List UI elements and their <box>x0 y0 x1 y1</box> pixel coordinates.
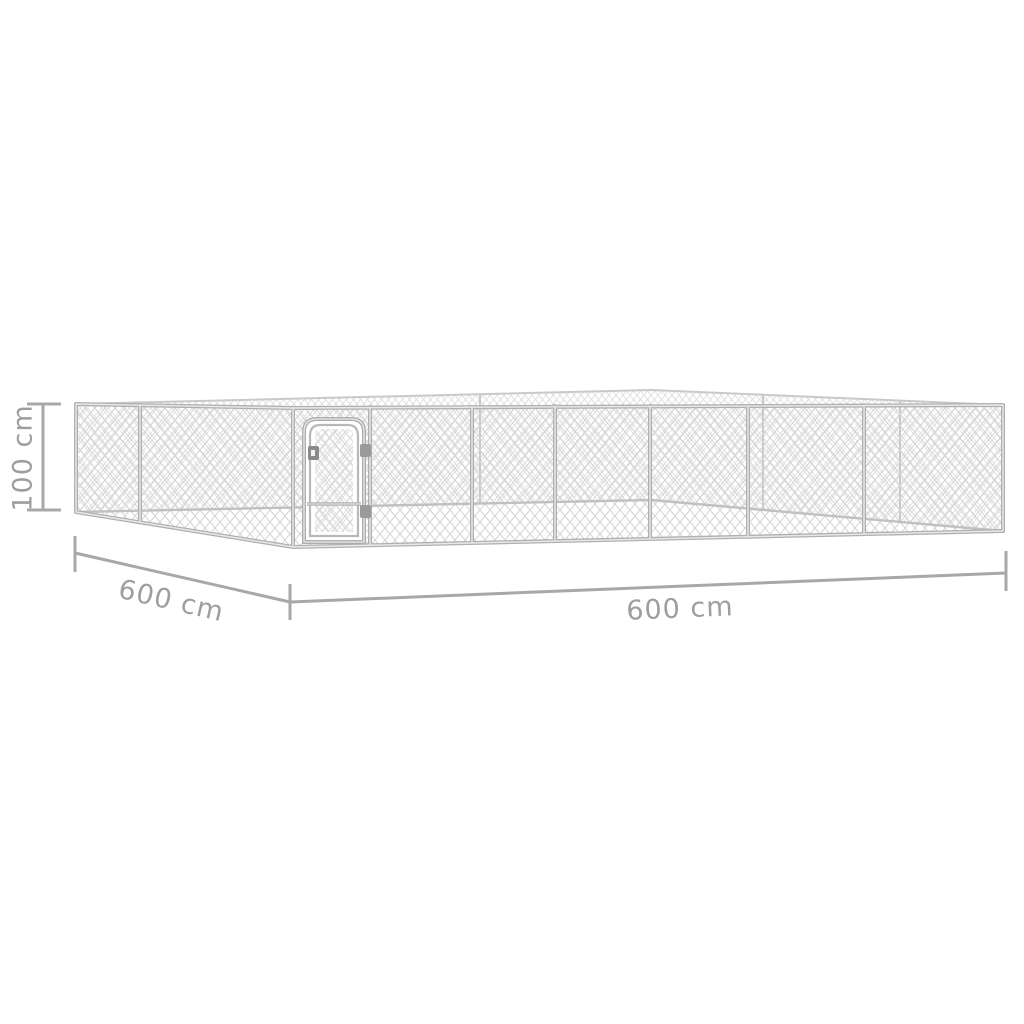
chain-link-mesh-left-face <box>76 404 293 547</box>
door-hinge-top <box>360 444 371 457</box>
door-mesh-overlay <box>315 429 353 532</box>
kennel-illustration <box>76 390 1003 547</box>
kennel-dimension-diagram: 100 cm 600 cm 600 cm <box>0 0 1024 1024</box>
door-hinge-bottom <box>360 505 371 518</box>
door-latch-slot <box>311 450 315 456</box>
height-dimension-label: 100 cm <box>8 404 39 511</box>
width-dimension-label: 600 cm <box>626 591 734 626</box>
product-dimension-image: 100 cm 600 cm 600 cm <box>0 0 1024 1024</box>
depth-dimension-label: 600 cm <box>115 574 226 628</box>
kennel-door <box>304 419 371 542</box>
